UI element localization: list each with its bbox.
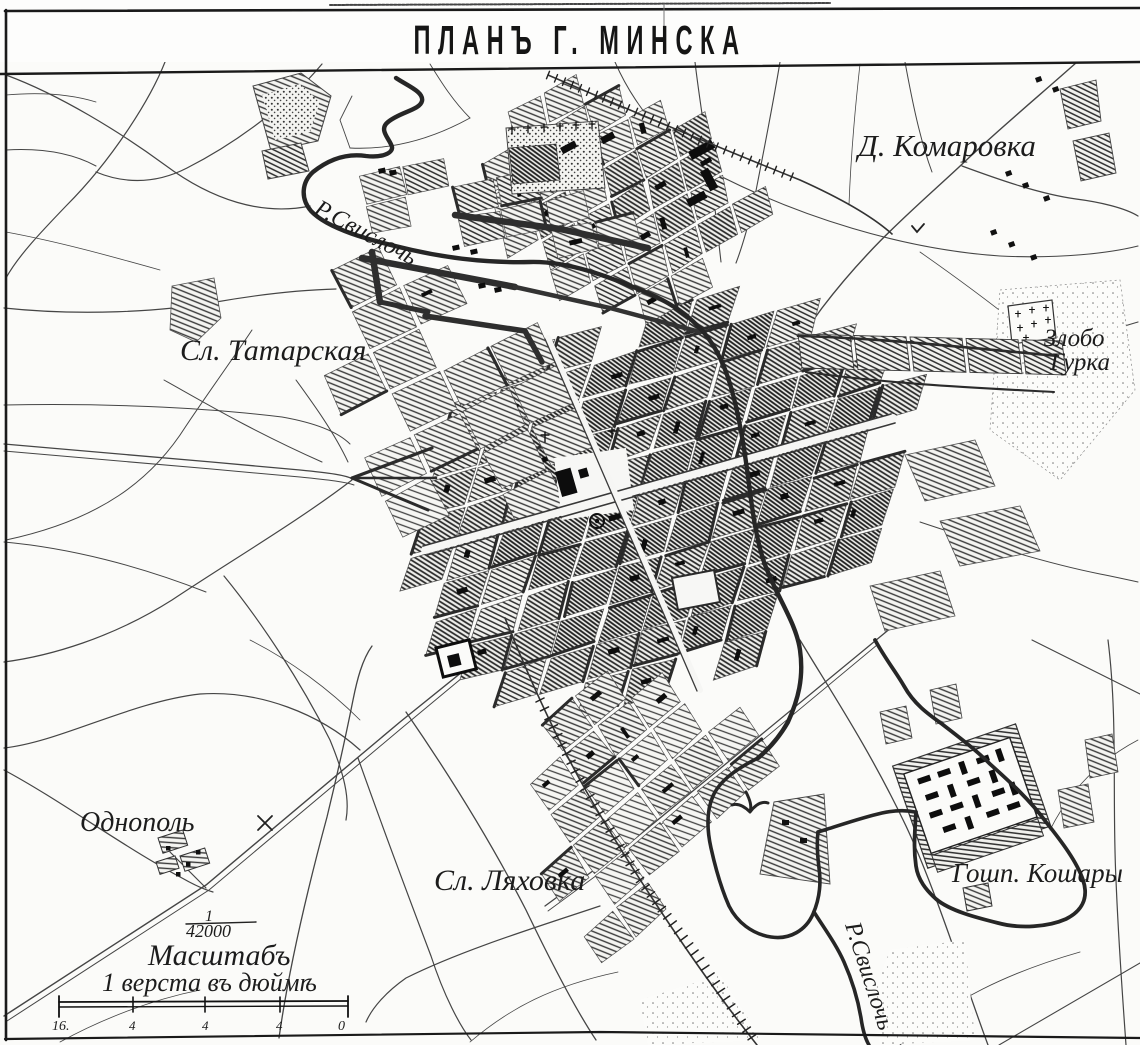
svg-text:Д. Комаровка: Д. Комаровка [855, 128, 1036, 163]
svg-text:0: 0 [338, 1019, 345, 1034]
svg-text:Злобо: Злобо [1044, 325, 1105, 352]
svg-text:4: 4 [202, 1018, 209, 1033]
svg-text:4: 4 [276, 1018, 283, 1033]
svg-text:Гошп. Кошары: Гошп. Кошары [951, 858, 1123, 888]
svg-text:Однополь: Однополь [80, 807, 195, 838]
svg-text:ПЛАНЪ Г. МИНСКА: ПЛАНЪ Г. МИНСКА [414, 17, 747, 63]
svg-text:4: 4 [129, 1018, 136, 1033]
svg-text:16.: 16. [52, 1019, 70, 1034]
svg-text:Гурка: Гурка [1049, 349, 1110, 376]
svg-text:1 верста въ дюймѣ: 1 верста въ дюймѣ [102, 968, 317, 997]
svg-text:Сл. Ляховка: Сл. Ляховка [434, 864, 585, 897]
svg-text:42000: 42000 [186, 921, 231, 941]
svg-text:Сл. Татарская: Сл. Татарская [180, 334, 366, 367]
